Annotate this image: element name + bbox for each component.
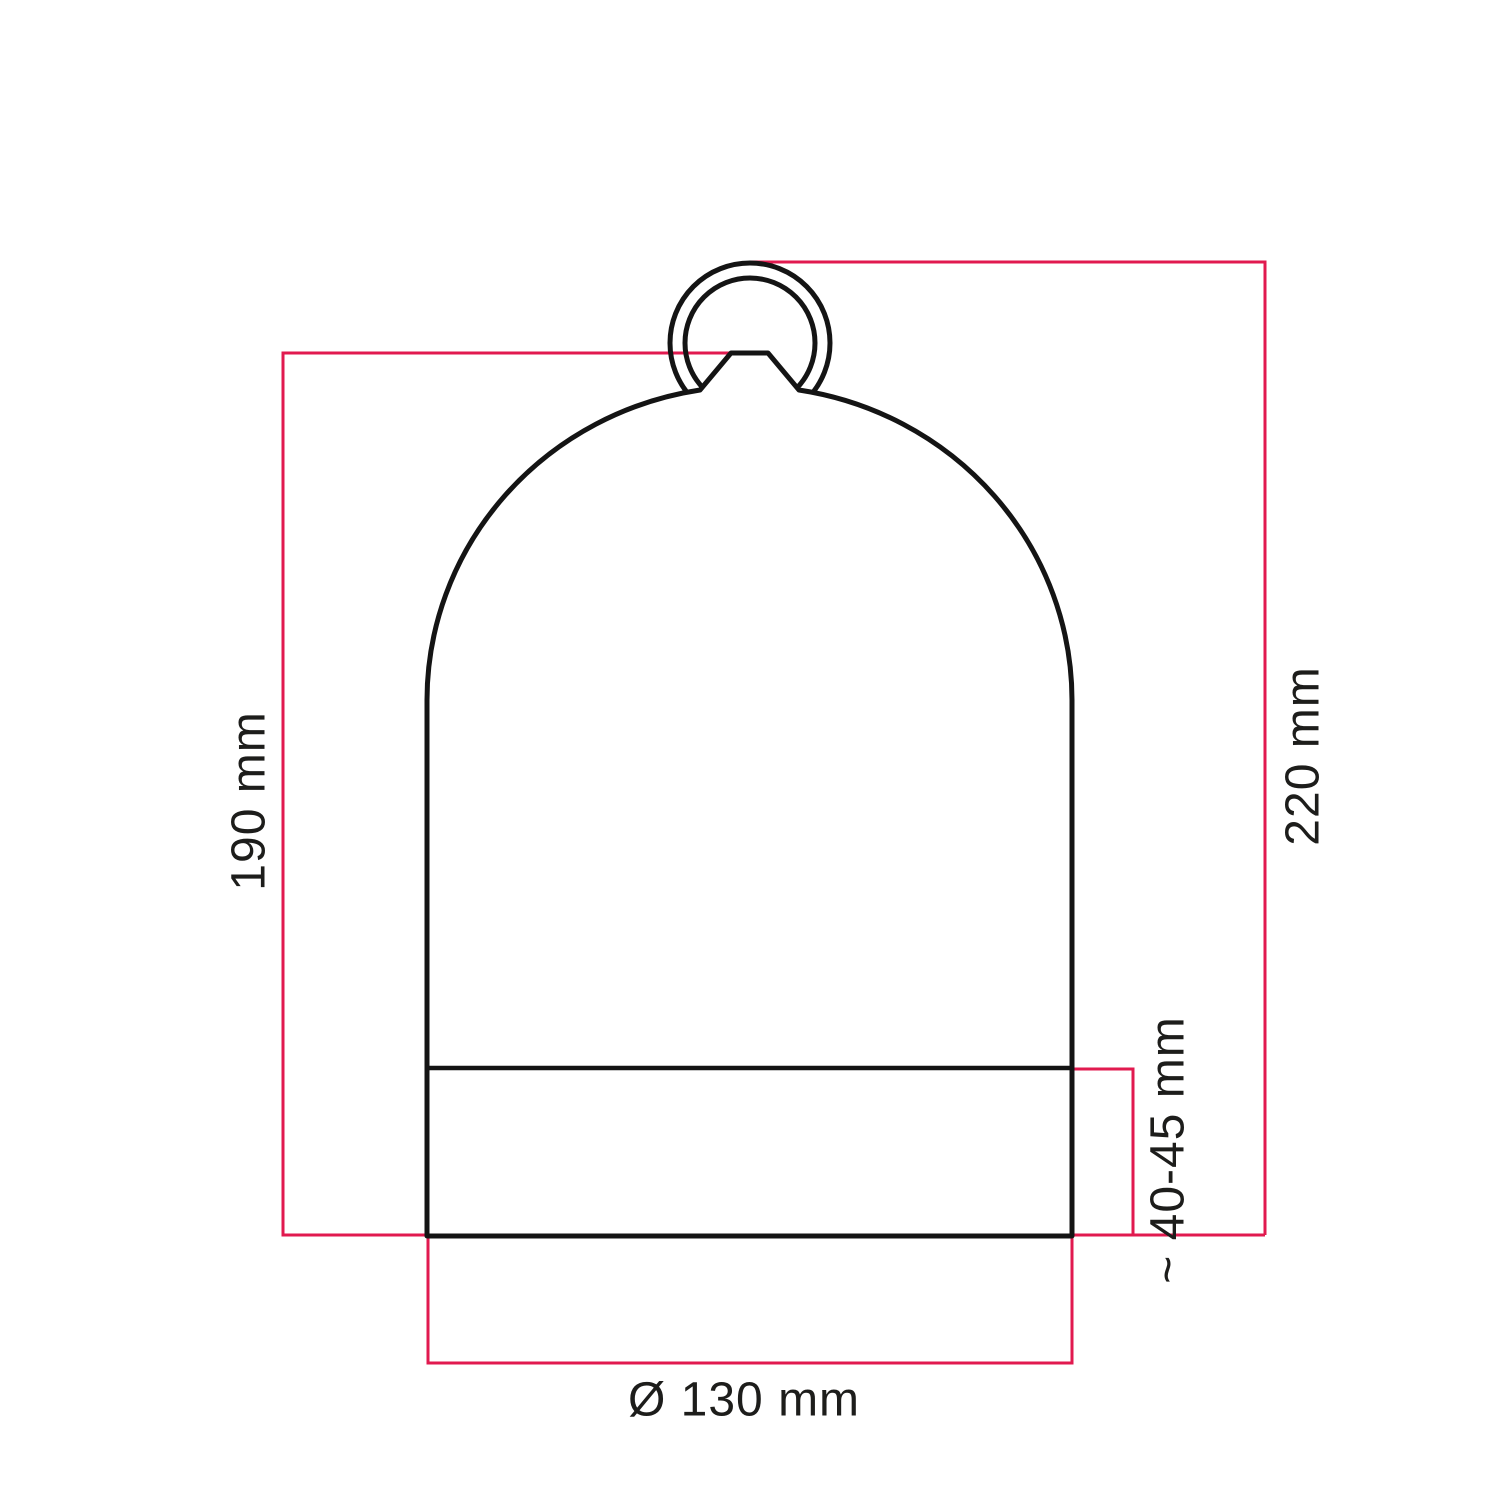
dimension-box-130 bbox=[428, 1235, 1072, 1363]
bell-silhouette bbox=[427, 353, 1072, 1236]
dimension-box-40-45 bbox=[1070, 1069, 1133, 1235]
dim-label-total-height: 220 mm bbox=[1276, 666, 1331, 845]
dim-label-diameter: Ø 130 mm bbox=[628, 1373, 860, 1428]
dim-label-body-height: 190 mm bbox=[222, 711, 277, 890]
dim-label-base-band-height: ~ 40-45 mm bbox=[1141, 1016, 1196, 1283]
diagram-canvas: 190 mm 220 mm ~ 40-45 mm Ø 130 mm bbox=[0, 0, 1500, 1500]
